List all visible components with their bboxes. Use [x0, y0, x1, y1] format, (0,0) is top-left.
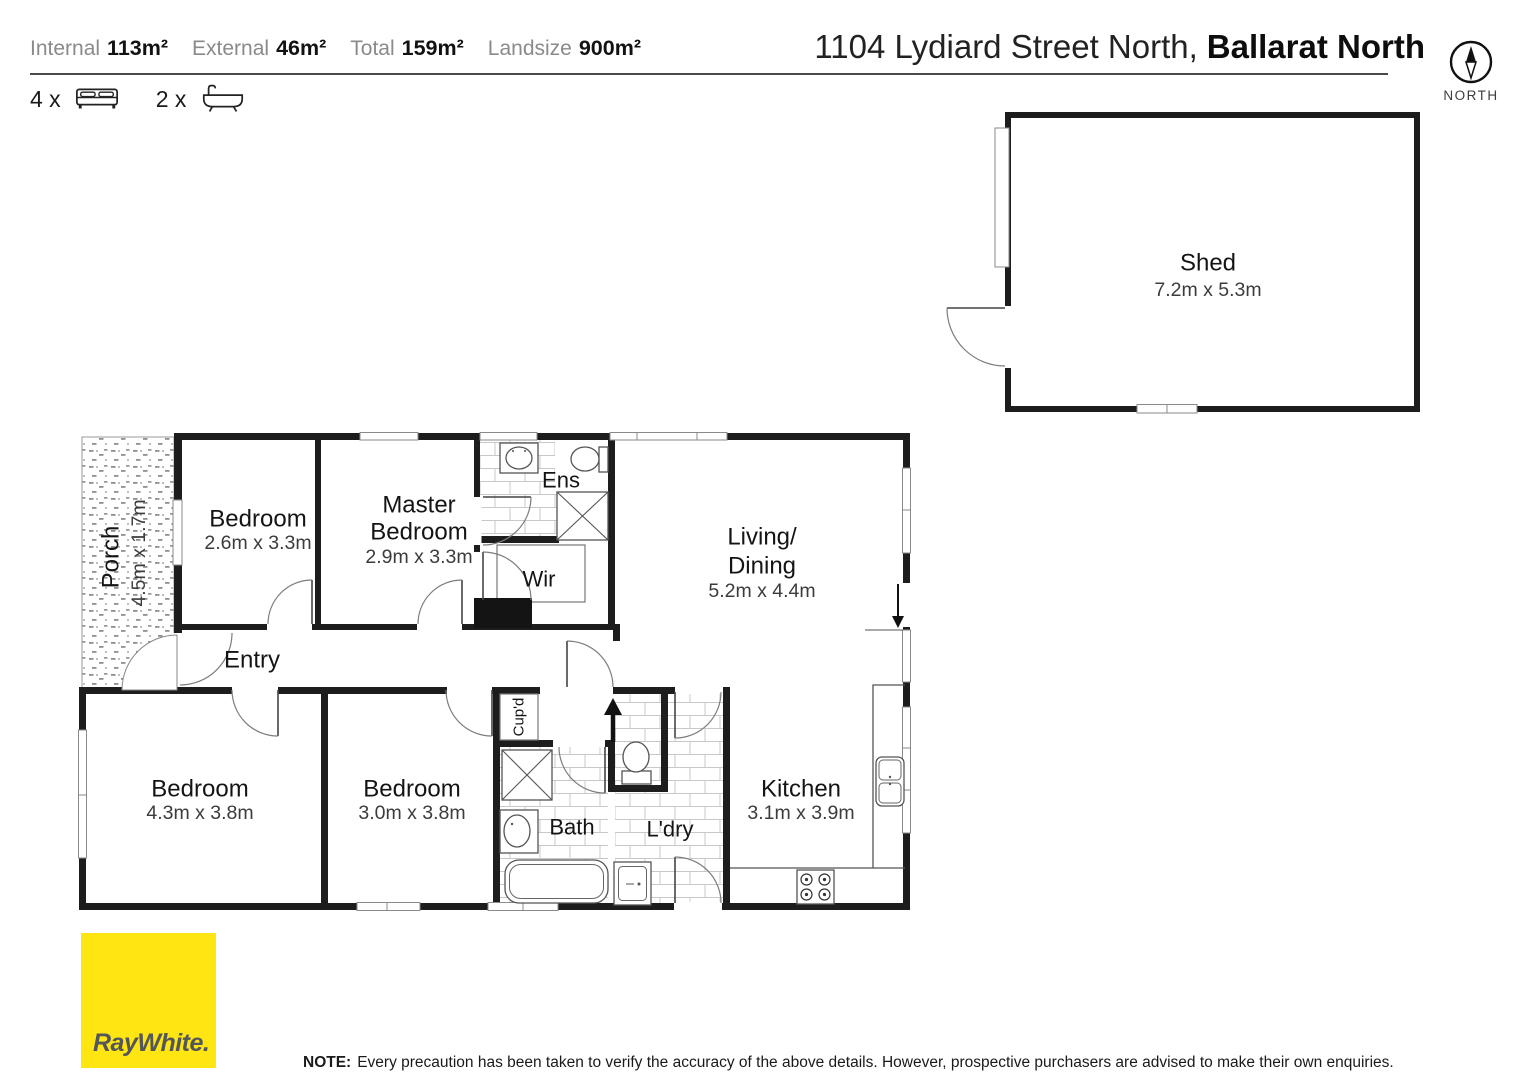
- room-label-bedroom-3: Bedroom: [151, 776, 248, 803]
- chimney-block: [474, 598, 532, 628]
- floorplan-page: Internal 113m² External 46m² Total 159m²…: [0, 0, 1527, 1080]
- bath-vanity: [500, 810, 538, 853]
- room-label-living-1: Living/: [727, 524, 797, 551]
- room-label-shed: Shed: [1180, 250, 1236, 277]
- room-dims-living: 5.2m x 4.4m: [708, 580, 815, 602]
- room-label-master-1: Master: [382, 492, 455, 519]
- shed-window: [995, 128, 1009, 267]
- room-dims-bedroom-3: 4.3m x 3.8m: [146, 802, 253, 824]
- kitchen-sink: [876, 757, 904, 806]
- room-label-bedroom-1: Bedroom: [209, 506, 306, 533]
- bath-shower: [502, 750, 552, 800]
- raywhite-logo-text: RayWhite.: [93, 1029, 209, 1058]
- room-dims-porch: 4.5m x 1.7m: [128, 499, 150, 606]
- room-label-laundry: L'dry: [647, 817, 694, 842]
- cooktop: [797, 870, 834, 904]
- room-label-kitchen: Kitchen: [761, 776, 841, 803]
- room-label-bedroom-4: Bedroom: [363, 776, 460, 803]
- disclaimer-note: NOTE:Every precaution has been taken to …: [303, 1054, 1394, 1072]
- room-label-porch: Porch: [98, 526, 125, 589]
- shed-door-swing: [947, 308, 1005, 366]
- room-dims-master: 2.9m x 3.3m: [365, 546, 472, 568]
- room-label-living-2: Dining: [728, 553, 796, 580]
- raywhite-logo: RayWhite.: [81, 933, 216, 1068]
- room-label-entry: Entry: [224, 647, 280, 674]
- room-label-master-2: Bedroom: [370, 519, 467, 546]
- room-label-bath: Bath: [549, 815, 594, 840]
- room-dims-shed: 7.2m x 5.3m: [1154, 279, 1261, 301]
- wc-toilet: [622, 742, 651, 784]
- room-dims-bedroom-4: 3.0m x 3.8m: [358, 802, 465, 824]
- room-dims-kitchen: 3.1m x 3.9m: [747, 802, 854, 824]
- room-label-wir: Wir: [523, 567, 556, 592]
- note-label: NOTE:: [303, 1054, 351, 1071]
- room-dims-bedroom-1: 2.6m x 3.3m: [204, 532, 311, 554]
- room-label-ens: Ens: [542, 468, 580, 493]
- ens-vanity: [500, 443, 538, 473]
- room-label-cupboard: Cup'd: [511, 698, 528, 737]
- floorplan-svg: Shed 7.2m x 5.3m Porch 4.5m x 1.7m Bedro…: [0, 0, 1527, 1080]
- ens-shower: [557, 492, 608, 540]
- laundry-trough: [614, 862, 651, 905]
- bathtub: [505, 860, 608, 903]
- note-text: Every precaution has been taken to verif…: [357, 1054, 1393, 1071]
